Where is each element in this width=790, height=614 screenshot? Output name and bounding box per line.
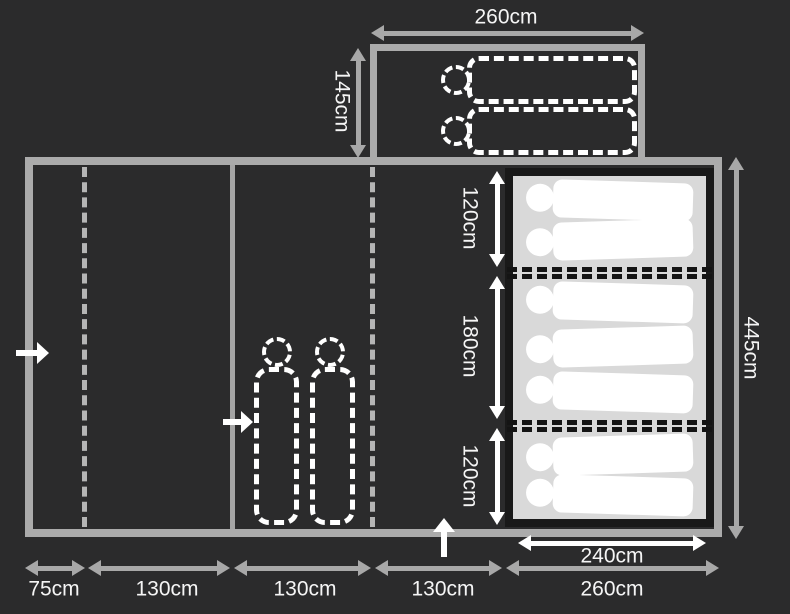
sleeper-body-icon — [552, 179, 693, 221]
sleeper-body-icon — [552, 281, 693, 323]
sleeper-head-icon — [526, 478, 555, 507]
sleeping-bag-icon — [467, 107, 637, 155]
sleeping-bag-icon — [310, 367, 355, 525]
living-divider-dashed-line — [370, 167, 375, 527]
sleeper-icon — [525, 280, 694, 323]
bottom-width-label: 75cm — [28, 579, 79, 600]
bottom-75-arrow-icon — [38, 566, 72, 571]
sleeper-icon — [525, 473, 694, 516]
section-height-label: 120cm — [460, 186, 481, 249]
room-divider-line — [230, 165, 235, 529]
main-length-label: 445cm — [741, 316, 762, 379]
porch-divider-dashed-line — [82, 167, 87, 527]
sleeper-body-icon — [552, 218, 693, 260]
sleeping-bag-head-icon — [315, 337, 345, 367]
bedroom-divider-dash-icon — [507, 267, 712, 272]
bottom-width-label: 130cm — [411, 579, 474, 600]
sleeping-bag-head-icon — [262, 337, 292, 367]
annex-depth-arrow-icon — [356, 61, 361, 145]
annex-depth-label: 145cm — [332, 69, 353, 132]
sleeper-icon — [525, 325, 694, 368]
sleeper-head-icon — [526, 335, 555, 364]
bottom-130a-arrow-icon — [101, 566, 217, 571]
sleeper-head-icon — [526, 285, 555, 314]
bottom-width-label: 130cm — [135, 579, 198, 600]
bottom-width-label: 260cm — [580, 579, 643, 600]
sleeper-body-icon — [552, 474, 693, 516]
annex-width-arrow-icon — [384, 31, 631, 36]
sleeping-bag-head-icon — [441, 65, 471, 95]
sleeper-body-icon — [552, 371, 693, 413]
door-arrow-bottom-icon — [433, 518, 455, 558]
bottom-130c-arrow-icon — [388, 566, 489, 571]
bedroom-divider-dash-icon — [507, 420, 712, 425]
door-arrow-middle-icon — [223, 411, 253, 433]
sleeper-icon — [525, 433, 694, 476]
section-120b-arrow-icon — [495, 441, 500, 512]
sleeper-icon — [525, 178, 694, 221]
section-120-arrow-icon — [495, 184, 500, 254]
sleeping-bag-head-icon — [441, 116, 471, 146]
section-height-label: 120cm — [460, 444, 481, 507]
bottom-130b-arrow-icon — [247, 566, 358, 571]
sleeper-head-icon — [526, 375, 555, 404]
bedroom-divider-dash-icon — [507, 427, 712, 432]
section-180-arrow-icon — [495, 289, 500, 406]
annex-width-label: 260cm — [474, 7, 537, 28]
sleeper-head-icon — [526, 183, 555, 212]
sleeper-icon — [525, 370, 694, 413]
sleeper-body-icon — [552, 433, 693, 475]
sleeping-bag-icon — [467, 56, 637, 104]
sleeper-icon — [525, 218, 694, 261]
main-length-arrow-icon — [734, 170, 739, 526]
sleeping-bag-icon — [254, 367, 299, 525]
tent-floorplan-diagram: 260cm 145cm 120cm 180cm 120cm 445cm 240c… — [0, 0, 790, 614]
sleeper-head-icon — [526, 228, 555, 257]
sleeper-body-icon — [552, 325, 693, 367]
sleeper-head-icon — [526, 443, 555, 472]
bedroom-divider-dash-icon — [507, 274, 712, 279]
door-arrow-left-icon — [16, 342, 49, 364]
bottom-width-label: 130cm — [273, 579, 336, 600]
bedroom-width-label: 240cm — [580, 546, 643, 567]
section-height-label: 180cm — [460, 314, 481, 377]
